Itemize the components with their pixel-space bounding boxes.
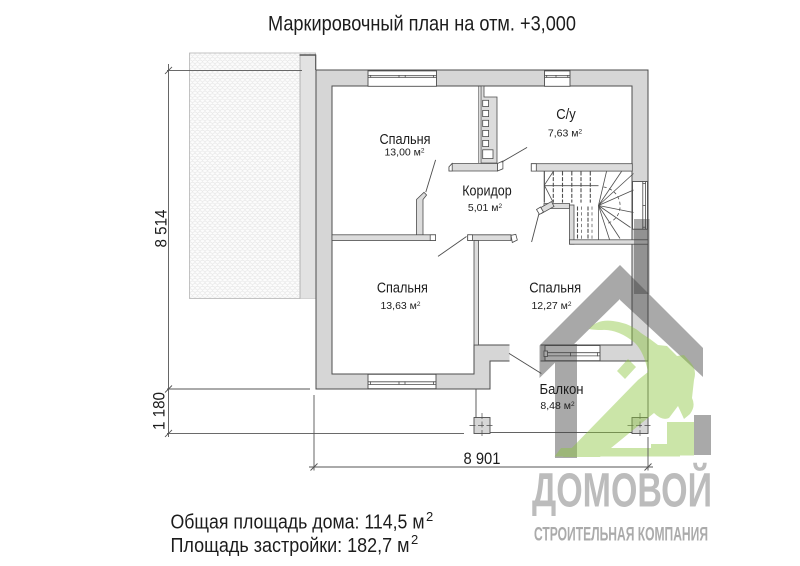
svg-text:С/у: С/у (556, 107, 576, 123)
svg-text:СТРОИТЕЛЬНАЯ КОМПАНИЯ: СТРОИТЕЛЬНАЯ КОМПАНИЯ (534, 525, 708, 546)
svg-text:7,63 м2: 7,63 м2 (548, 128, 583, 140)
svg-text:8,48 м2: 8,48 м2 (540, 400, 575, 412)
svg-text:ДОМОВОЙ: ДОМОВОЙ (532, 463, 712, 518)
svg-text:2: 2 (411, 532, 418, 547)
svg-text:Балкон: Балкон (540, 382, 584, 398)
svg-text:Спальня: Спальня (529, 280, 581, 296)
svg-text:2: 2 (426, 509, 433, 524)
svg-text:Спальня: Спальня (377, 280, 428, 296)
svg-text:Коридор: Коридор (462, 184, 512, 200)
svg-text:Общая площадь дома: 114,5 м: Общая площадь дома: 114,5 м (171, 512, 425, 534)
svg-text:8 514: 8 514 (153, 210, 171, 248)
svg-text:5,01 м2: 5,01 м2 (468, 202, 503, 214)
svg-text:1 180: 1 180 (151, 392, 169, 430)
svg-text:Маркировочный план на отм. +3,: Маркировочный план на отм. +3,000 (268, 13, 576, 36)
svg-text:13,63 м2: 13,63 м2 (380, 300, 420, 312)
svg-text:8 901: 8 901 (464, 450, 501, 468)
svg-text:12,27 м2: 12,27 м2 (531, 300, 571, 312)
svg-text:Площадь застройки: 182,7 м: Площадь застройки: 182,7 м (171, 535, 410, 557)
svg-text:13,00 м2: 13,00 м2 (384, 146, 424, 158)
svg-text:Спальня: Спальня (380, 132, 431, 148)
